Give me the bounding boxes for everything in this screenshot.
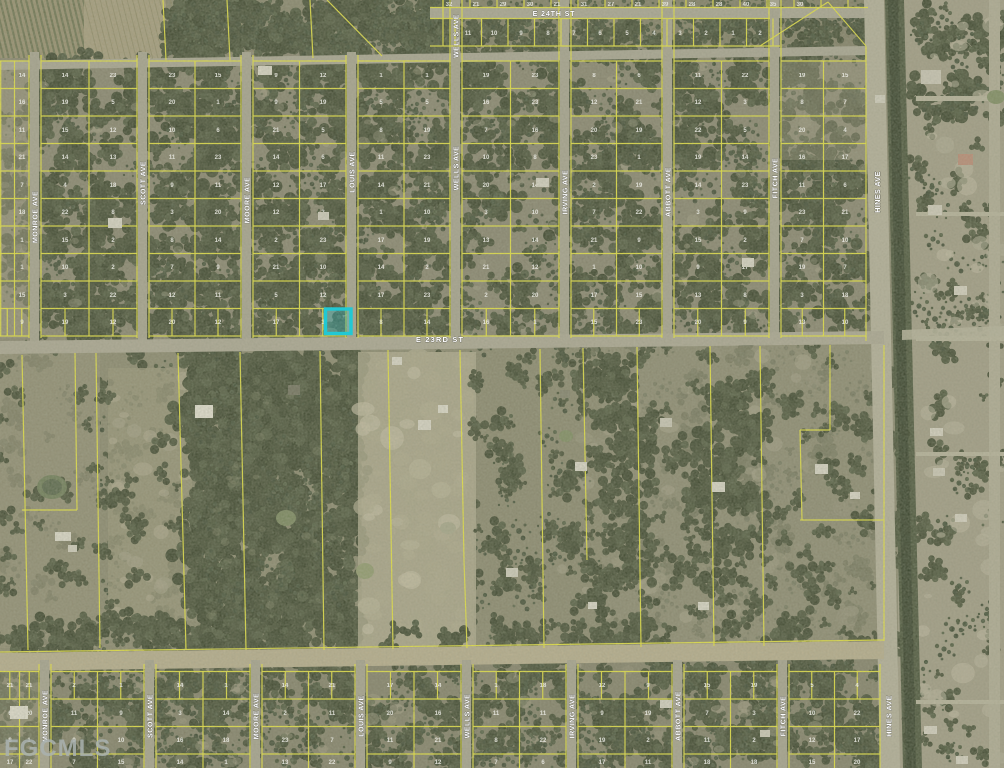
svg-text:WELLS AVE: WELLS AVE [463, 694, 472, 739]
svg-text:IRVING AVE: IRVING AVE [561, 170, 570, 215]
svg-text:FITCH AVE: FITCH AVE [779, 696, 788, 737]
svg-text:E 24TH ST: E 24TH ST [533, 9, 576, 18]
svg-text:FGCMLS: FGCMLS [4, 735, 111, 762]
svg-text:ABBOTT AVE: ABBOTT AVE [664, 167, 673, 217]
svg-text:WELLS AVE: WELLS AVE [454, 14, 461, 58]
svg-text:FITCH AVE: FITCH AVE [771, 158, 780, 199]
svg-text:MOORE AVE: MOORE AVE [252, 693, 261, 740]
svg-text:LOUIS AVE: LOUIS AVE [357, 695, 366, 737]
svg-text:WELLS AVE: WELLS AVE [452, 146, 461, 191]
svg-text:E 23RD ST: E 23RD ST [416, 335, 464, 344]
svg-text:LOUIS AVE: LOUIS AVE [348, 151, 357, 193]
svg-text:MOORE AVE: MOORE AVE [243, 177, 252, 224]
svg-text:SCOTT AVE: SCOTT AVE [139, 161, 148, 205]
svg-text:SCOTT AVE: SCOTT AVE [146, 694, 155, 738]
svg-text:MONROE AVE: MONROE AVE [31, 191, 40, 243]
svg-text:HINES AVE: HINES AVE [885, 695, 894, 737]
svg-text:HINES AVE: HINES AVE [873, 171, 882, 213]
svg-text:ABBOTT AVE: ABBOTT AVE [674, 691, 683, 741]
svg-text:IRVING AVE: IRVING AVE [568, 694, 577, 739]
